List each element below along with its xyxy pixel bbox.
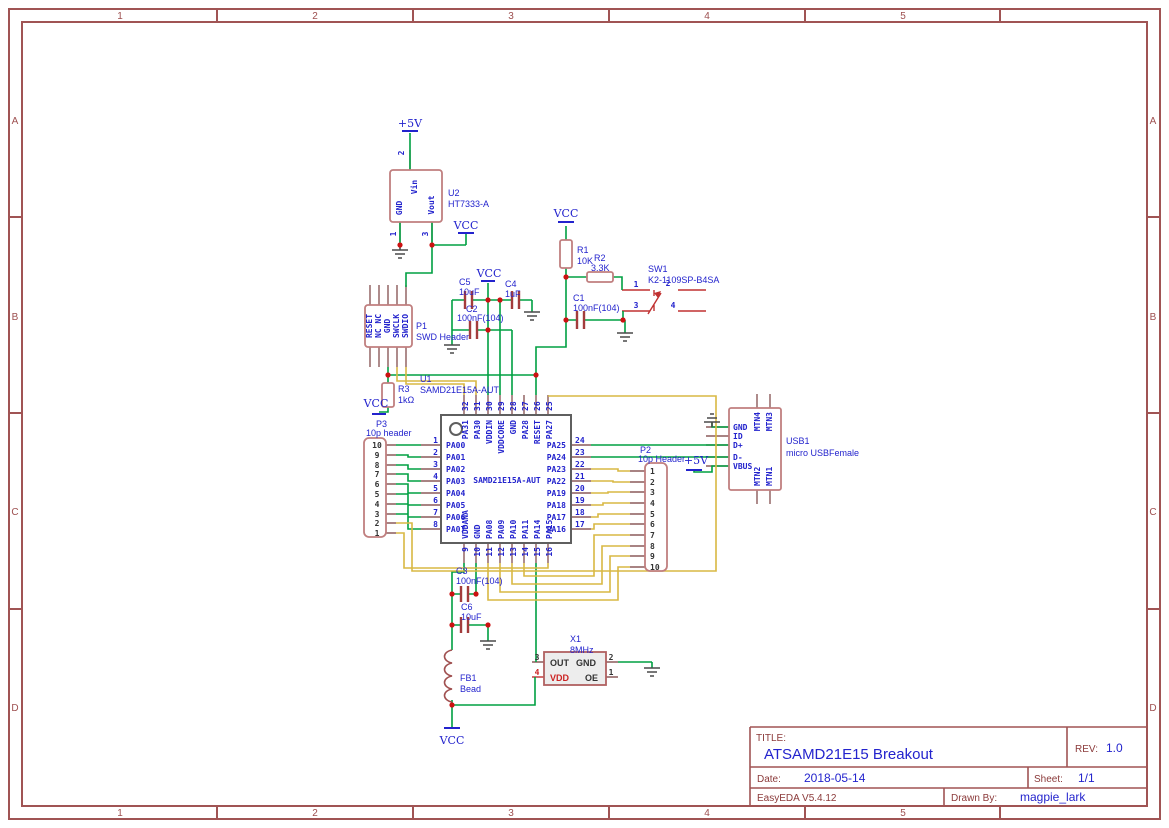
u1-pin-number: 17 [575,520,585,529]
fb1-value: Bead [460,684,481,694]
u1-pin-number: 13 [509,547,518,557]
u1-pin-number: 24 [575,436,585,445]
u1-pin-name: PA25 [547,441,566,450]
frame-col-label: 1 [117,808,123,819]
c6-value: 10uF [461,612,482,622]
c4-value: 1uF [505,289,521,299]
x1-pin-oe: OE [585,673,598,683]
usb-pin-vbus: VBUS [733,462,752,471]
c1-value: 100nF(104) [573,303,620,313]
u2-pin-gnd: GND [395,201,404,216]
frame-col-label: 1 [117,11,123,22]
net-label-5v: +5V [398,117,423,130]
r3-value: 1kΩ [398,395,415,405]
u1-pin-number: 19 [575,496,585,505]
u1-pin-number: 26 [533,401,542,411]
u1-pin-number: 12 [497,547,506,557]
u1-pin-number: 10 [473,547,482,557]
u1-pin-name: RESET [533,420,542,444]
junction-dot [385,372,390,377]
u1-value: SAMD21E15A-AUT [420,385,500,395]
u1-pin-name: VDDIN [485,420,494,444]
u1-pin-number: 25 [545,401,554,411]
p2-pin: 1 [650,467,655,476]
u1-pin-number: 30 [485,401,494,411]
u1-pin-number: 29 [497,401,506,411]
r2-value: 3.3K [591,263,610,273]
p1-pin-swdio: SWDIO [401,314,410,338]
p2-pin: 5 [650,510,655,519]
sw1-pin1: 1 [634,280,639,289]
u1-pin-name: PA23 [547,465,566,474]
u1-pin-name: PA27 [545,420,554,439]
u1-pin-name: PA15 [545,520,554,539]
junction-dot [485,622,490,627]
usb-pin-mtn2: MTN2 [753,467,762,486]
frame-row-label: C [1149,507,1156,518]
c5-value: 10uF [459,287,480,297]
u1-pin-name: PA02 [446,465,465,474]
usb-pin-dplus: D+ [733,441,743,450]
c5-ref: C5 [459,277,471,287]
sheet-frame: 1 2 3 4 5 1 2 3 4 5 A B C D A B C D [9,9,1160,819]
c3-ref: C3 [456,566,468,576]
u1-pin-name: PA03 [446,477,465,486]
x1-value: 8MHz [570,645,594,655]
p2-pin: 8 [650,542,655,551]
u1-pin-name: PA00 [446,441,465,450]
frame-col-label: 5 [900,11,906,22]
frame-row-label: A [12,116,19,127]
title-block: TITLE: ATSAMD21E15 Breakout REV: 1.0 Dat… [750,727,1147,806]
junction-dot [563,317,568,322]
title-label: TITLE: [756,733,786,744]
u1-pin-number: 27 [521,401,530,411]
u1-pin-name: PA18 [547,501,566,510]
u1-pin-number: 18 [575,508,585,517]
usb-pin-dminus: D- [733,453,743,462]
x1-pin-out: OUT [550,658,570,668]
p2-pin: 10 [650,563,660,572]
p1-pin-reset: RESET [365,314,374,338]
r3-ref: R3 [398,384,410,394]
u2-pin2-number: 2 [397,150,406,155]
u1-pin-name: VDDCORE [497,420,506,454]
u1-pin-number: 2 [433,448,438,457]
frame-row-label: B [12,312,19,323]
r1-body [560,240,572,268]
u1-pin-number: 21 [575,472,585,481]
p3-pin: 4 [375,500,380,509]
net-label-vcc: VCC [439,734,465,747]
u1-pin-name: PA10 [509,520,518,539]
junction-dot [497,297,502,302]
p1-pin-gnd: GND [383,319,392,334]
net-label-5v: +5V [684,454,709,467]
sw1-pin3: 3 [634,301,639,310]
u1-pin-name: PA04 [446,489,465,498]
frame-outer-border [9,9,1160,819]
date-label: Date: [757,774,781,785]
frame-col-label: 5 [900,808,906,819]
fb1-bead-coil [445,650,453,702]
p3-pin: 1 [375,529,380,538]
u1-pin-name: PA24 [547,453,566,462]
p3-pin: 5 [375,490,380,499]
usb-pin-mtn3: MTN3 [765,412,774,431]
date-value: 2018-05-14 [804,771,866,785]
rev-value: 1.0 [1106,741,1123,755]
u1-pin-name: PA14 [533,520,542,539]
frame-row-label: D [11,703,18,714]
usb-pin-id: ID [733,432,743,441]
u1-pin-name: GND [473,524,482,539]
u1-pin-number: 5 [433,484,438,493]
schematic-sheet: 1 2 3 4 5 1 2 3 4 5 A B C D A B C D TITL… [0,0,1169,828]
u1-pin-name: PA01 [446,453,465,462]
junction-dot [473,591,478,596]
frame-col-label: 2 [312,808,318,819]
c1-ref: C1 [573,293,585,303]
u1-pin-number: 14 [521,547,530,557]
u1-pin-number: 8 [433,520,438,529]
x1-pin4: 4 [535,668,540,677]
u1-pin-name: PA09 [497,520,506,539]
p2-header-body [645,463,667,571]
u2-pin3-number: 3 [421,231,430,236]
frame-row-label: B [1150,312,1157,323]
sheet-value: 1/1 [1078,771,1095,785]
net-label-vcc: VCC [453,219,479,232]
u1-pin-number: 11 [485,547,494,557]
junction-dot [485,327,490,332]
u1-pin-number: 16 [545,547,554,557]
c4-ref: C4 [505,279,517,289]
p3-pin: 8 [375,461,380,470]
x1-ref: X1 [570,634,581,644]
u1-pin-number: 22 [575,460,585,469]
sheet-label: Sheet: [1034,774,1063,785]
frame-col-label: 3 [508,808,514,819]
drawn-by-value: magpie_lark [1020,790,1086,804]
p3-pin: 2 [375,519,380,528]
u1-pin-name: PA30 [473,420,482,439]
x1-pin3: 3 [535,653,540,662]
p2-pin: 7 [650,531,655,540]
u1-pin-number: 9 [461,547,470,552]
u1-pin-name: PA28 [521,420,530,439]
r1-ref: R1 [577,245,589,255]
frame-grid-ticks [9,9,1160,819]
software-version: EasyEDA V5.4.12 [757,793,837,804]
junction-dot [620,317,625,322]
frame-col-label: 3 [508,11,514,22]
p2-value: 10p Header [638,454,685,464]
c3-value: 100nF(104) [456,576,503,586]
frame-row-label: D [1149,703,1156,714]
usb-pin-mtn4: MTN4 [753,412,762,431]
p1-ref: P1 [416,321,427,331]
sw1-value: K2-1109SP-B4SA [648,275,719,285]
p3-pin: 6 [375,480,380,489]
u1-pin-number: 20 [575,484,585,493]
u1-pin-name: GND [509,420,518,435]
u2-pin-vin: Vin [409,180,419,195]
x1-pin2: 2 [609,653,614,662]
u2-ref: U2 [448,188,460,198]
p3-pin: 3 [375,510,380,519]
u1-pin-name: PA22 [547,477,566,486]
u1-pin-name: PA11 [521,520,530,539]
frame-col-label: 2 [312,11,318,22]
u1-pin-name: PA31 [461,420,470,439]
sw1-ref: SW1 [648,264,668,274]
u1-pin-number: 32 [461,401,470,411]
p3-pin: 9 [375,451,380,460]
u1-pin-name: PA05 [446,501,465,510]
c2-value: 100nF(104) [457,313,504,323]
p2-pin: 9 [650,552,655,561]
p3-pin: 7 [375,470,380,479]
junction-dot [449,622,454,627]
u1-pin-number: 7 [433,508,438,517]
u2-pin-vout: Vout [427,195,436,214]
junction-dot [563,274,568,279]
u1-pin-number: 6 [433,496,438,505]
p2-pin: 3 [650,488,655,497]
u1-pin-number: 28 [509,401,518,411]
frame-row-label: A [1150,116,1157,127]
junction-dot [449,702,454,707]
u1-pin-number: 3 [433,460,438,469]
usb1-value: micro USBFemale [786,448,859,458]
c6-ref: C6 [461,602,473,612]
p2-pin: 2 [650,478,655,487]
rev-label: REV: [1075,744,1098,755]
u1-pin-number: 31 [473,401,482,411]
p2-pin: 6 [650,520,655,529]
usb1-ref: USB1 [786,436,810,446]
p3-value: 10p header [366,428,412,438]
p1-value: SWD Header [416,332,469,342]
fb1-ref: FB1 [460,673,477,683]
x1-pin-vdd: VDD [550,673,570,683]
junction-dot [485,297,490,302]
sw1-pin2: 2 [666,279,671,288]
p3-pin: 10 [372,441,382,450]
u1-pin-number: 1 [433,436,438,445]
junction-dot [429,242,434,247]
u2-value: HT7333-A [448,199,489,209]
u1-part-name: SAMD21E15A-AUT [473,476,541,485]
frame-row-label: C [11,507,18,518]
u1-pin-number: 4 [433,472,438,481]
frame-col-label: 4 [704,11,710,22]
net-label-vcc: VCC [363,397,389,410]
drawn-by-label: Drawn By: [951,793,997,804]
u1-pin-number: 23 [575,448,585,457]
u1-pin-name: PA08 [485,520,494,539]
p1-pin-nc: NC NC [374,314,383,338]
r2-ref: R2 [594,253,606,263]
usb-pin-gnd: GND [733,423,748,432]
junction-dot [533,372,538,377]
r2-body [587,272,613,282]
x1-pin-gnd: GND [576,658,597,668]
p2-pin: 4 [650,499,655,508]
frame-col-label: 4 [704,808,710,819]
x1-pin1: 1 [609,668,614,677]
u1-ref: U1 [420,374,432,384]
usb-pin-mtn1: MTN1 [765,467,774,486]
schematic-canvas[interactable]: 1 2 3 4 5 1 2 3 4 5 A B C D A B C D TITL… [0,0,1169,828]
net-label-vcc: VCC [553,207,579,220]
junction-dot [449,591,454,596]
u2-pin1-number: 1 [389,231,398,236]
sheet-title: ATSAMD21E15 Breakout [764,746,934,763]
p1-pin-swclk: SWCLK [392,314,401,338]
u1-pin-number: 15 [533,547,542,557]
sw1-pin4: 4 [671,301,676,310]
frame-inner-border [22,22,1147,806]
net-label-vcc: VCC [476,267,502,280]
u1-pin-name: VDDANA [461,510,470,539]
u1-pin-name: PA19 [547,489,566,498]
junction-dot [397,242,402,247]
